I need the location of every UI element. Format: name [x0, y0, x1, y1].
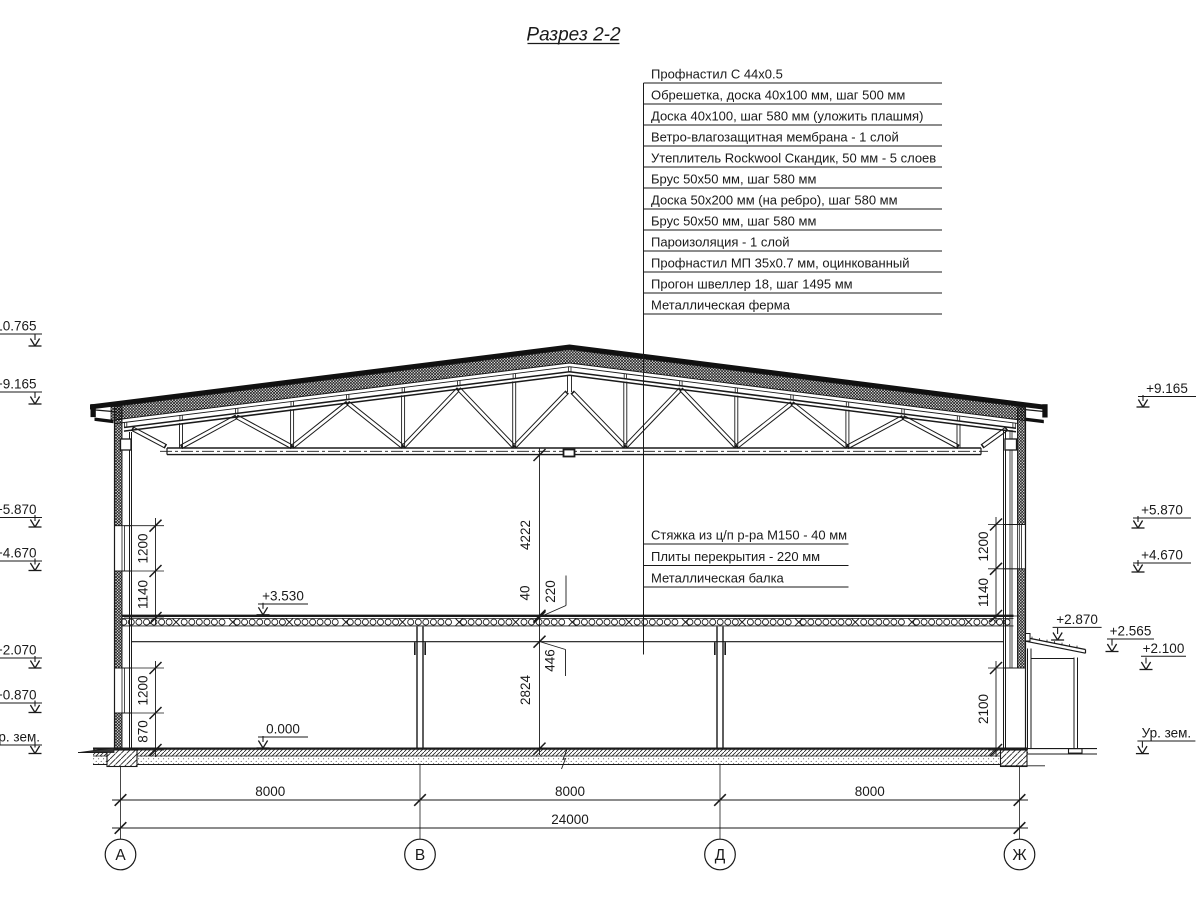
svg-text:+3.530: +3.530	[262, 589, 304, 604]
svg-text:+2.870: +2.870	[1056, 612, 1098, 627]
svg-text:+0.870: +0.870	[0, 688, 37, 703]
svg-text:Д: Д	[715, 847, 726, 864]
svg-text:Ур. зем.: Ур. зем.	[1142, 726, 1192, 741]
svg-text:2100: 2100	[976, 694, 991, 724]
svg-text:+4.670: +4.670	[0, 546, 37, 561]
svg-text:Пароизоляция - 1 слой: Пароизоляция - 1 слой	[651, 235, 790, 250]
svg-text:Ж: Ж	[1012, 847, 1027, 864]
svg-text:Утеплитель Rockwool Скандик, 5: Утеплитель Rockwool Скандик, 50 мм - 5 с…	[651, 151, 936, 166]
svg-text:1140: 1140	[136, 580, 151, 609]
svg-text:Плиты перекрытия - 220 мм: Плиты перекрытия - 220 мм	[651, 549, 820, 564]
svg-text:8000: 8000	[255, 784, 285, 799]
svg-text:1140: 1140	[976, 578, 991, 607]
svg-text:+2.565: +2.565	[1110, 624, 1152, 639]
svg-text:+2.100: +2.100	[1143, 641, 1185, 656]
svg-text:Брус 50х50 мм, шаг 580 мм: Брус 50х50 мм, шаг 580 мм	[651, 214, 816, 229]
svg-text:Прогон швеллер 18, шаг 1495 мм: Прогон швеллер 18, шаг 1495 мм	[651, 277, 853, 292]
svg-text:Обрешетка, доска 40х100 мм, ша: Обрешетка, доска 40х100 мм, шаг 500 мм	[651, 88, 905, 103]
svg-text:0.000: 0.000	[266, 722, 300, 737]
svg-text:Профнастил С 44х0.5: Профнастил С 44х0.5	[651, 67, 783, 82]
svg-text:+2.070: +2.070	[0, 643, 37, 658]
svg-text:+9.165: +9.165	[0, 377, 37, 392]
svg-text:Металлическая балка: Металлическая балка	[651, 571, 785, 586]
svg-text:+9.165: +9.165	[1146, 381, 1188, 396]
svg-text:Брус 50х50 мм, шаг 580 мм: Брус 50х50 мм, шаг 580 мм	[651, 172, 816, 187]
svg-text:А: А	[115, 847, 126, 864]
svg-text:4222: 4222	[518, 520, 533, 550]
svg-text:40: 40	[518, 585, 533, 600]
svg-text:Профнастил МП 35х0.7 мм, оцинк: Профнастил МП 35х0.7 мм, оцинкованный	[651, 256, 909, 271]
svg-text:8000: 8000	[555, 784, 585, 799]
svg-text:В: В	[415, 847, 425, 864]
svg-text:Доска 40х100, шаг 580 мм (улож: Доска 40х100, шаг 580 мм (уложить плашмя…	[651, 109, 923, 124]
svg-text:Стяжка из ц/п р-ра М150 - 40 м: Стяжка из ц/п р-ра М150 - 40 мм	[651, 528, 847, 543]
svg-text:24000: 24000	[551, 812, 589, 827]
svg-text:+5.870: +5.870	[0, 502, 37, 517]
svg-text:+4.670: +4.670	[1141, 548, 1183, 563]
svg-text:Разрез 2-2: Разрез 2-2	[526, 25, 621, 46]
svg-text:Ветро-влагозащитная мембрана -: Ветро-влагозащитная мембрана - 1 слой	[651, 130, 899, 145]
svg-text:1200: 1200	[976, 531, 991, 561]
svg-text:8000: 8000	[855, 784, 885, 799]
svg-text:Металлическая ферма: Металлическая ферма	[651, 298, 791, 313]
svg-text:Ур. зем.: Ур. зем.	[0, 730, 40, 745]
svg-text:1200: 1200	[136, 533, 151, 563]
svg-text:870: 870	[136, 720, 151, 743]
svg-text:Доска 50х200 мм (на ребро), ша: Доска 50х200 мм (на ребро), шаг 580 мм	[651, 193, 898, 208]
svg-text:446: 446	[543, 649, 558, 672]
svg-text:2824: 2824	[518, 674, 533, 705]
svg-text:+10.765: +10.765	[0, 319, 37, 334]
svg-text:1200: 1200	[136, 675, 151, 705]
svg-text:220: 220	[543, 580, 558, 603]
svg-text:+5.870: +5.870	[1141, 503, 1183, 518]
